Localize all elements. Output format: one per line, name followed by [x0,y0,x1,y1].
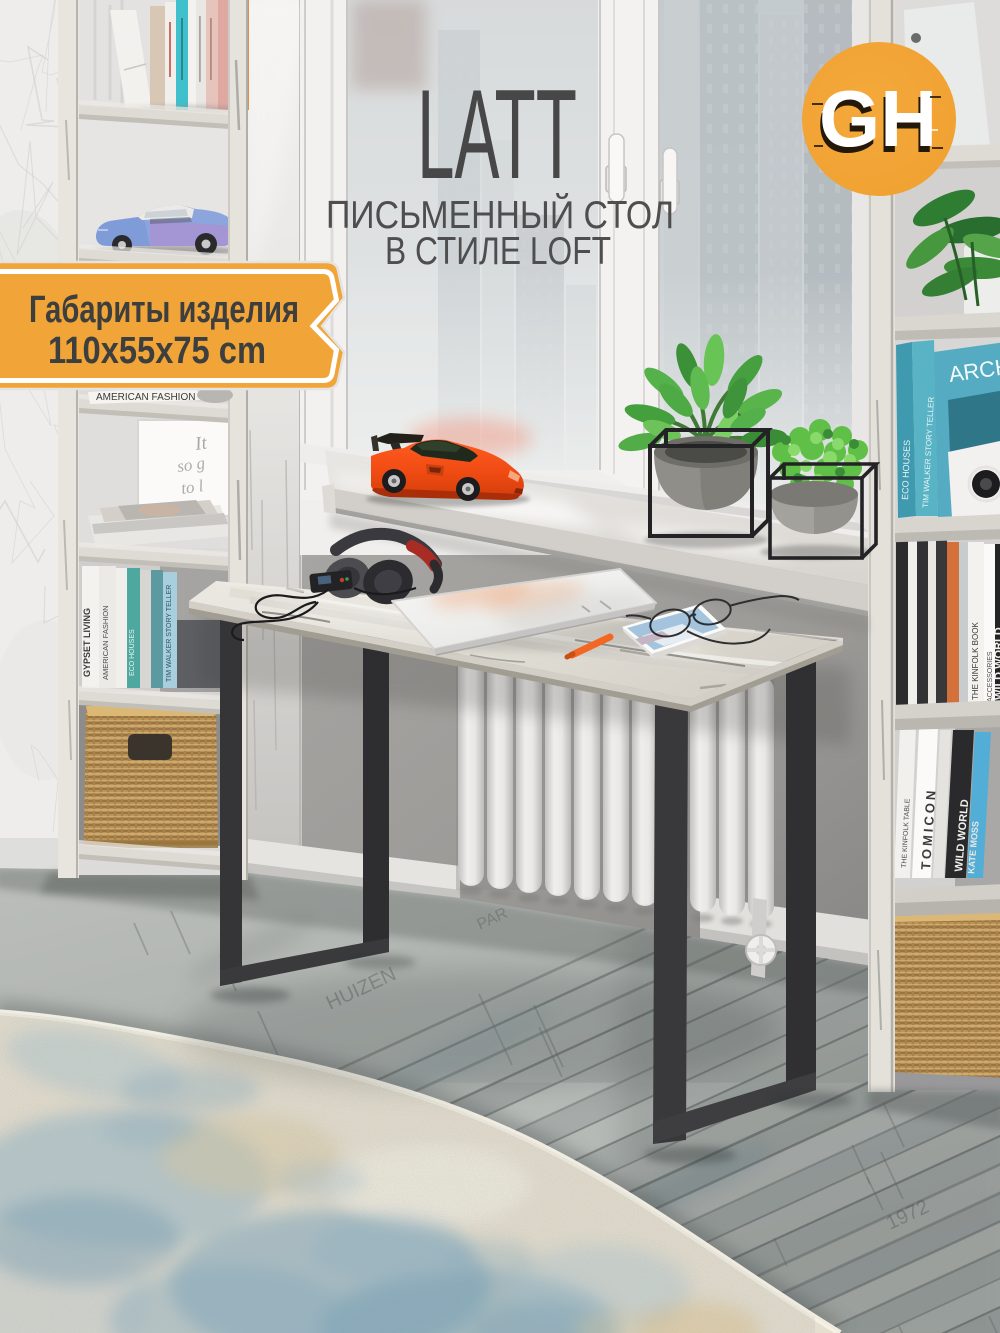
svg-text:so g: so g [176,453,206,476]
svg-text:LATT: LATT [417,63,577,205]
svg-text:to l: to l [180,476,205,498]
svg-text:THE KINFOLK BOOK: THE KINFOLK BOOK [971,622,980,700]
svg-text:GYPSET LIVING: GYPSET LIVING [82,608,92,677]
svg-text:TIM WALKER STORY TELLER: TIM WALKER STORY TELLER [166,585,173,682]
svg-text:GH: GH [819,74,937,163]
svg-text:AMERICAN FASHION: AMERICAN FASHION [101,605,110,680]
svg-text:ACCESSORIES: ACCESSORIES [987,651,994,702]
svg-text:ECO HOUSES: ECO HOUSES [900,440,912,500]
svg-text:AMERICAN FASHION: AMERICAN FASHION [96,392,195,403]
svg-text:WILD WORLD: WILD WORLD [993,627,1000,700]
svg-text:110x55x75 cm: 110x55x75 cm [48,330,266,372]
svg-text:ECO HOUSES: ECO HOUSES [129,629,136,676]
svg-text:Габариты изделия: Габариты изделия [29,289,299,331]
svg-text:В СТИЛЕ LOFT: В СТИЛЕ LOFT [385,230,611,273]
